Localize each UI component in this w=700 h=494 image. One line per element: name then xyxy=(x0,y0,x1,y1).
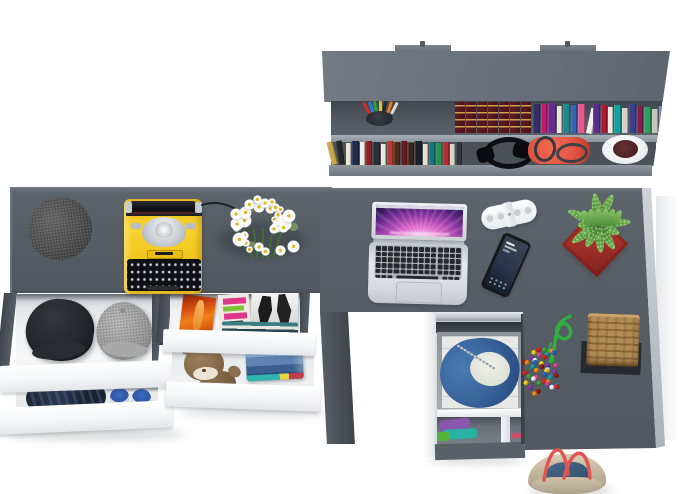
laptop-key xyxy=(438,247,443,252)
laptop-key xyxy=(407,252,412,257)
woven-basket xyxy=(586,313,640,367)
laptop-key xyxy=(394,263,399,268)
book-spine xyxy=(387,141,393,165)
laptop-key xyxy=(394,252,399,257)
laptop-key xyxy=(431,253,436,258)
laptop-key xyxy=(425,253,430,258)
bead-keychain xyxy=(522,345,562,397)
laptop-key xyxy=(412,270,417,275)
lower-book-row xyxy=(332,139,472,165)
book-spine xyxy=(601,105,607,133)
pencil-cup xyxy=(363,99,397,127)
laptop-key xyxy=(419,253,424,258)
bead xyxy=(542,371,548,377)
laptop-key xyxy=(425,264,430,269)
drawer-front-top-sliver xyxy=(436,312,523,322)
laptop-key xyxy=(425,247,430,252)
bead xyxy=(554,384,560,390)
laptop-key xyxy=(418,270,423,275)
bead xyxy=(542,354,548,360)
lower-compartment xyxy=(437,417,524,444)
potted-cup xyxy=(602,135,649,164)
book-spine xyxy=(360,142,365,165)
flower xyxy=(232,232,247,247)
book-spine xyxy=(408,143,414,165)
laptop-keywell xyxy=(374,245,462,280)
laptop-key xyxy=(419,258,424,263)
smartphone xyxy=(480,231,532,298)
book-spine xyxy=(629,104,636,133)
laptop-key xyxy=(388,269,393,274)
laptop-key xyxy=(425,270,430,275)
shelf-bottom-board xyxy=(329,165,652,176)
typewriter-platen xyxy=(130,201,196,214)
book-spine xyxy=(593,104,600,133)
laptop-key xyxy=(442,276,447,279)
laptop-key xyxy=(406,264,411,269)
laptop-key xyxy=(401,247,406,252)
book-spine xyxy=(622,108,628,133)
laptop-key xyxy=(382,263,387,268)
laptop-key xyxy=(455,265,460,270)
succulent-plant xyxy=(556,178,640,262)
laptop-key xyxy=(388,252,393,257)
laptop-key xyxy=(431,259,436,264)
wall-shelf xyxy=(322,44,670,176)
book-spine xyxy=(608,107,613,133)
red-bag xyxy=(528,135,592,165)
laptop-key xyxy=(419,264,424,269)
book-spine xyxy=(533,104,540,133)
laptop-key xyxy=(437,259,442,264)
bead xyxy=(524,360,530,366)
cabinet-side-panel xyxy=(0,293,17,373)
book-spine xyxy=(456,142,462,165)
flower xyxy=(287,240,300,253)
laptop-key xyxy=(382,257,387,262)
book-spine xyxy=(415,141,422,165)
mount-pin-icon xyxy=(565,41,570,47)
laptop-key xyxy=(437,253,442,258)
laptop-key xyxy=(406,269,411,274)
laptop-key xyxy=(456,248,461,253)
laptop-key xyxy=(394,269,399,274)
bead xyxy=(552,350,558,356)
book-spine xyxy=(423,144,428,165)
book-spine xyxy=(563,104,570,133)
side-lever xyxy=(186,223,196,229)
book-spine xyxy=(443,142,449,165)
laptop-key xyxy=(382,246,387,251)
book-spine xyxy=(381,144,386,165)
desk-leg-panel xyxy=(320,312,355,444)
laptop-key xyxy=(412,264,417,269)
laptop-key xyxy=(388,263,393,268)
flower xyxy=(275,245,286,256)
desk-set-product-render xyxy=(0,0,700,494)
tote-bag xyxy=(524,446,612,494)
tote-straps xyxy=(530,436,606,482)
bead xyxy=(553,372,559,378)
laptop-key xyxy=(388,246,393,251)
laptop-key xyxy=(437,270,442,275)
book-spine xyxy=(429,142,435,165)
drawer-front xyxy=(166,381,321,411)
shadow xyxy=(656,196,678,440)
laptop-key xyxy=(375,274,380,277)
bead xyxy=(530,376,536,382)
speaker-grille xyxy=(522,204,535,217)
book-spine xyxy=(652,109,658,133)
laptop-key xyxy=(400,269,405,274)
laptop-key xyxy=(443,253,448,258)
book-spine-maroon xyxy=(510,102,520,133)
side-lever xyxy=(131,223,141,229)
laptop-key xyxy=(450,248,455,253)
laptop-key xyxy=(382,269,387,274)
laptop-key xyxy=(381,275,386,278)
laptop-key xyxy=(419,247,424,252)
spacebar xyxy=(147,286,179,290)
laptop-key xyxy=(388,258,393,263)
laptop-key xyxy=(394,258,399,263)
bead xyxy=(539,364,545,370)
laptop-key xyxy=(431,247,436,252)
folded-shirt-green xyxy=(437,432,450,441)
book-spine xyxy=(578,104,585,133)
book-spine-maroon xyxy=(477,102,487,133)
laptop-trackpad xyxy=(396,281,443,303)
laptop-key xyxy=(449,259,454,264)
laptop-key xyxy=(413,253,418,258)
laptop-key xyxy=(431,270,436,275)
flower xyxy=(278,222,289,233)
laptop-key xyxy=(388,275,393,278)
laptop-key xyxy=(376,252,381,257)
laptop-key xyxy=(443,270,448,275)
laptop-key xyxy=(456,254,461,259)
bead xyxy=(528,385,534,391)
mount-pin-icon xyxy=(420,41,425,47)
laptop-key xyxy=(400,258,405,263)
gray-cap-button xyxy=(120,308,125,313)
type-basket-center xyxy=(155,222,173,238)
typewriter xyxy=(122,196,206,296)
bead xyxy=(532,391,538,397)
laptop-key xyxy=(431,264,436,269)
book-spine-maroon xyxy=(521,102,531,133)
laptop-key xyxy=(375,269,380,274)
laptop xyxy=(368,199,471,306)
book-spine xyxy=(557,106,562,133)
book-spine xyxy=(637,106,643,133)
laptop-key xyxy=(450,253,455,258)
laptop-key xyxy=(407,247,412,252)
bead xyxy=(553,363,559,369)
laptop-key xyxy=(376,263,381,268)
laptop-key xyxy=(448,276,453,279)
cup-body xyxy=(366,111,393,126)
flower-bouquet xyxy=(208,170,314,270)
shelf-top-panel xyxy=(322,51,670,102)
shelf-body xyxy=(322,51,670,176)
book-spine-maroon xyxy=(466,102,476,133)
cup-plant xyxy=(613,140,638,158)
laptop-spacebar xyxy=(396,275,438,279)
laptop-key xyxy=(456,259,461,264)
book-spine xyxy=(366,141,372,165)
book-spine xyxy=(401,141,407,165)
flower xyxy=(253,195,262,204)
underdesk-drawer-cabinet xyxy=(424,308,528,460)
book-spine xyxy=(548,103,556,133)
laptop-key xyxy=(443,259,448,264)
book-spine-maroon xyxy=(499,102,509,133)
cabinet-bottom-band xyxy=(435,442,525,460)
compartment-divider xyxy=(501,417,510,444)
laptop-key xyxy=(376,246,381,251)
laptop-key xyxy=(400,252,405,257)
book-spine xyxy=(541,104,547,133)
laptop-key xyxy=(382,252,387,257)
laptop-key xyxy=(455,271,460,276)
book-spine-maroon xyxy=(455,102,465,133)
laptop-key xyxy=(425,259,430,264)
laptop-key xyxy=(413,247,418,252)
laptop-key xyxy=(413,258,418,263)
book-spine xyxy=(644,107,651,133)
laptop-key xyxy=(443,265,448,270)
teddy-nose xyxy=(202,369,206,372)
drawer-open-caps xyxy=(16,294,152,368)
brand-plate-text xyxy=(155,252,173,255)
book-spine xyxy=(346,143,351,165)
laptop-key xyxy=(406,258,411,263)
book-spine xyxy=(614,105,621,133)
laptop-key xyxy=(394,246,399,251)
laptop-key xyxy=(437,265,442,270)
laptop-key xyxy=(400,264,405,269)
platen-knob xyxy=(125,202,132,213)
pill-speaker xyxy=(479,197,539,231)
book-spine xyxy=(352,141,359,165)
book-spine xyxy=(436,143,442,165)
maroon-book-set xyxy=(455,102,535,133)
laptop-key xyxy=(376,257,381,262)
bead xyxy=(531,349,537,355)
headphones xyxy=(477,137,533,165)
laptop-key xyxy=(449,265,454,270)
upper-book-row xyxy=(533,102,661,133)
book-spine xyxy=(571,105,577,133)
book-spine xyxy=(373,142,380,165)
drawer-front xyxy=(163,329,316,356)
book-spine xyxy=(450,144,455,165)
laptop-key xyxy=(449,271,454,276)
laptop-key xyxy=(455,276,460,279)
laptop-key xyxy=(444,248,449,253)
book-spine-maroon xyxy=(488,102,498,133)
book-spine xyxy=(659,106,665,133)
book-spine xyxy=(394,142,400,165)
